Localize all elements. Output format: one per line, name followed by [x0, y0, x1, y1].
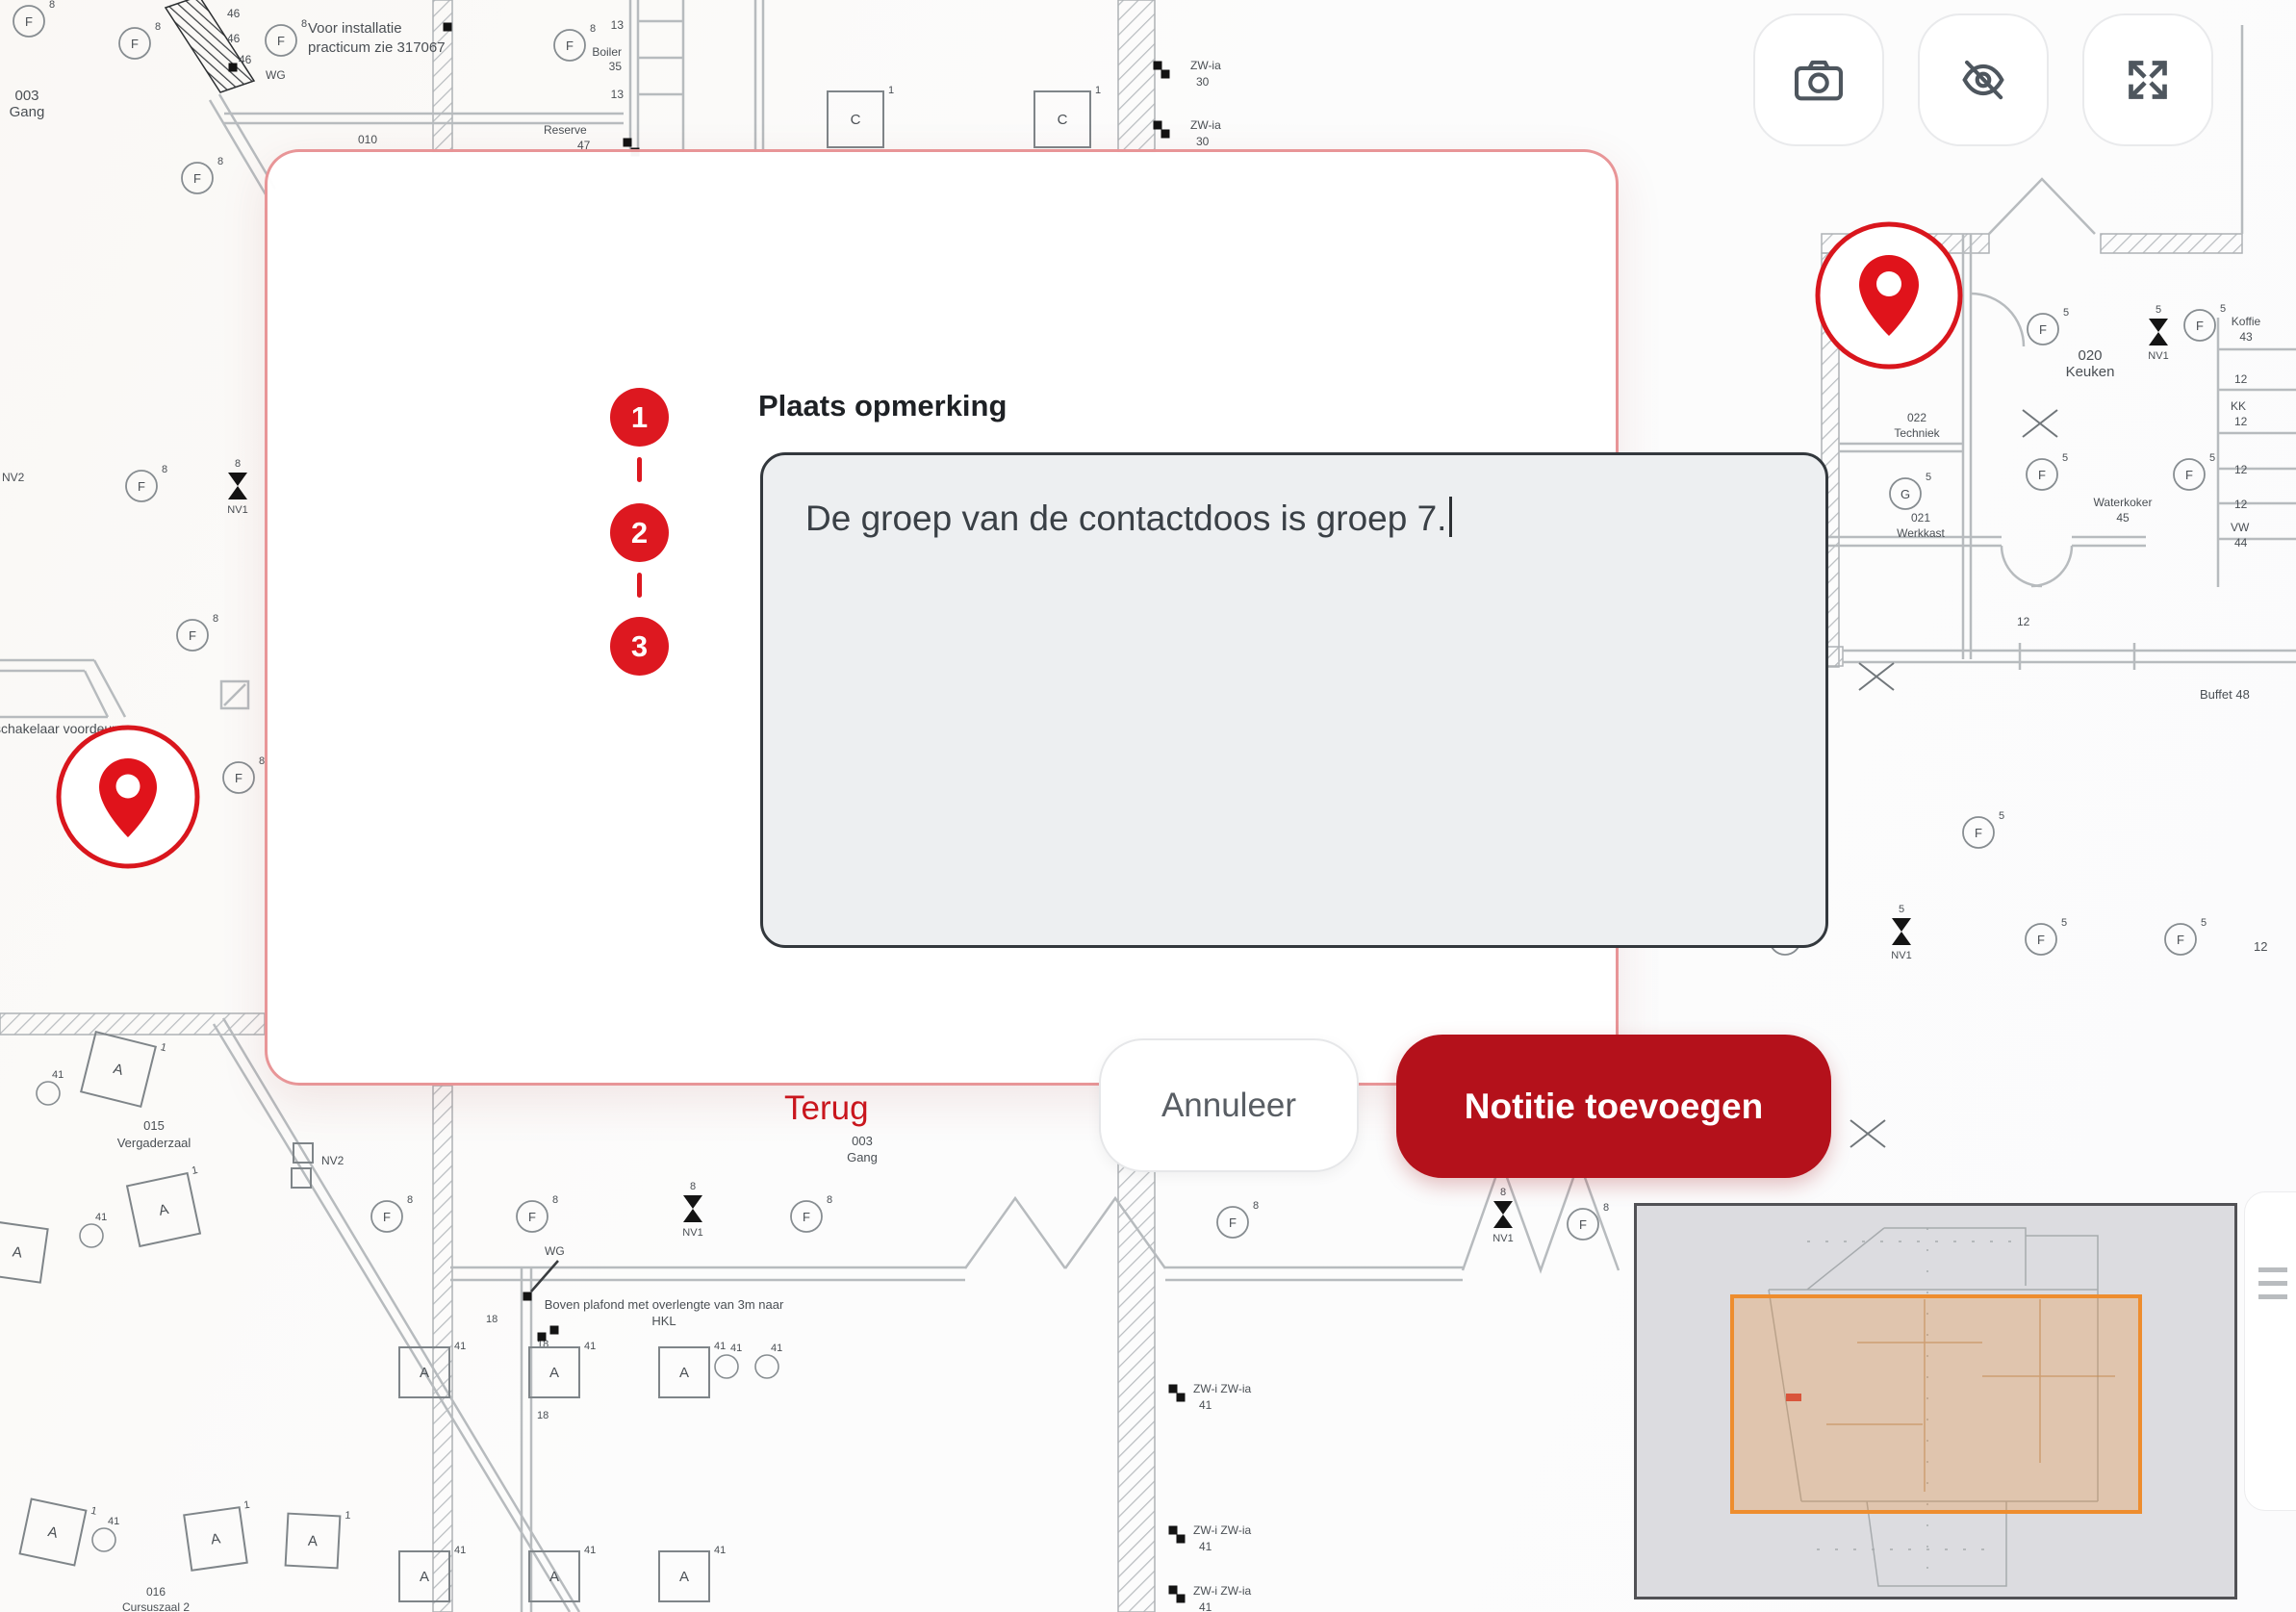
plan-small-circle: 41: [80, 1212, 107, 1247]
plan-square-symbol: A41: [529, 1545, 596, 1601]
svg-text:F: F: [2177, 933, 2184, 947]
plan-square-symbol: A1: [286, 1507, 351, 1569]
eye-off-icon: [1955, 52, 2011, 108]
plan-label: 46: [227, 7, 241, 20]
plan-device-circle: F5: [2174, 452, 2215, 490]
svg-text:F: F: [1229, 1215, 1237, 1230]
svg-text:A: A: [420, 1365, 429, 1381]
note-text: De groep van de contactdoos is groep 7.: [805, 499, 1446, 538]
plan-device-circle: F5: [2027, 452, 2068, 490]
plan-label: 022: [1907, 411, 1926, 424]
svg-text:41: 41: [108, 1516, 119, 1527]
panel-line: [2258, 1267, 2287, 1272]
svg-text:8: 8: [162, 464, 167, 475]
svg-text:8: 8: [155, 21, 161, 33]
add-note-button[interactable]: Notitie toevoegen: [1396, 1035, 1831, 1178]
minimap[interactable]: [1634, 1203, 2237, 1599]
plan-socket-dot: [444, 23, 452, 32]
plan-socket-dot: [523, 1292, 532, 1301]
plan-device-circle: F8: [371, 1194, 413, 1232]
plan-label: 43: [2239, 330, 2253, 344]
svg-text:A: A: [12, 1243, 23, 1261]
svg-text:1: 1: [243, 1499, 251, 1512]
svg-text:5: 5: [1999, 810, 2004, 822]
plan-label: 12: [2234, 463, 2248, 476]
plan-label: 016: [146, 1585, 166, 1599]
plan-label: 41: [1199, 1398, 1212, 1412]
plan-label: ZW-i ZW-ia: [1193, 1523, 1252, 1537]
svg-text:F: F: [1975, 826, 1982, 840]
plan-cross-symbol: [1859, 663, 1894, 690]
plan-label: Boven plafond met overlengte van 3m naar: [545, 1297, 784, 1312]
location-pin-marker[interactable]: [53, 722, 203, 872]
svg-text:NV1: NV1: [1891, 950, 1911, 961]
plan-device-circle: F5: [1963, 810, 2004, 848]
plan-label: 41: [1199, 1540, 1212, 1553]
plan-square-symbol: A1: [81, 1025, 167, 1109]
svg-text:1: 1: [89, 1505, 97, 1518]
plan-cross-symbol: [2023, 410, 2057, 437]
svg-text:41: 41: [714, 1545, 726, 1556]
note-textarea[interactable]: De groep van de contactdoos is groep 7.: [760, 452, 1828, 948]
svg-text:1: 1: [159, 1041, 167, 1054]
plan-square-symbol: A1: [126, 1164, 211, 1246]
svg-text:F: F: [235, 771, 242, 785]
dialog-title: Plaats opmerking: [758, 389, 1007, 423]
plan-device-circle: F5: [2165, 917, 2207, 955]
plan-label: 35: [609, 60, 623, 73]
camera-button[interactable]: [1753, 13, 1884, 146]
plan-socket-dot: [1154, 121, 1162, 130]
plan-device-circle: F5: [2026, 917, 2067, 955]
plan-label: 45: [2116, 511, 2130, 525]
svg-text:F: F: [528, 1210, 536, 1224]
plan-label: Gang: [10, 104, 45, 120]
plan-label: Koffie: [2232, 315, 2261, 328]
plan-device-circle: F8: [554, 23, 596, 61]
plan-nv-symbol: 5NV1: [1891, 904, 1911, 961]
svg-text:A: A: [420, 1569, 429, 1585]
plan-label: 46: [239, 53, 252, 66]
svg-text:8: 8: [235, 458, 241, 470]
plan-device-circle: F8: [791, 1194, 832, 1232]
svg-text:5: 5: [2062, 452, 2068, 464]
svg-text:F: F: [25, 14, 33, 29]
svg-text:A: A: [679, 1365, 689, 1381]
step-indicator-3: 3: [610, 617, 669, 676]
svg-text:F: F: [138, 479, 145, 494]
svg-text:F: F: [383, 1210, 391, 1224]
plan-socket-dot: [624, 139, 632, 147]
svg-text:5: 5: [2061, 917, 2067, 929]
svg-text:8: 8: [301, 18, 307, 30]
plan-label: 13: [611, 88, 625, 101]
step-connector: [637, 573, 642, 598]
svg-text:F: F: [566, 38, 574, 53]
plan-label: WG: [266, 68, 286, 82]
plan-label: 30: [1196, 135, 1210, 148]
svg-text:5: 5: [2201, 917, 2207, 929]
text-cursor: [1449, 497, 1452, 537]
plan-nv-symbol: 8NV1: [682, 1181, 702, 1239]
svg-text:41: 41: [52, 1069, 64, 1081]
svg-text:A: A: [112, 1061, 125, 1079]
plan-device-circle: F8: [517, 1194, 558, 1232]
svg-text:1: 1: [1095, 85, 1101, 96]
svg-text:8: 8: [1603, 1202, 1609, 1214]
svg-text:8: 8: [49, 0, 55, 11]
plan-socket-dot: [1177, 1394, 1186, 1402]
plan-label: KK: [2231, 399, 2246, 413]
svg-text:F: F: [2037, 933, 2045, 947]
plan-label: ZW-i ZW-ia: [1193, 1584, 1252, 1598]
plan-label: Keuken: [2066, 364, 2115, 380]
plan-label: practicum zie 317067: [308, 39, 446, 56]
plan-label: Buffet 48: [2200, 687, 2250, 702]
svg-text:8: 8: [217, 156, 223, 167]
plan-label: 003: [852, 1134, 873, 1148]
plan-square-symbol: A1: [183, 1499, 257, 1571]
fullscreen-button[interactable]: [2082, 13, 2213, 146]
svg-text:5: 5: [1899, 904, 1904, 915]
plan-label: NV2: [2, 471, 25, 484]
plan-device-circle: G5: [1890, 472, 1931, 509]
plan-label: Werkkast: [1897, 526, 1945, 540]
back-button[interactable]: Terug: [784, 1089, 869, 1128]
svg-text:5: 5: [2156, 304, 2161, 316]
plan-device-circle: F8: [126, 464, 167, 501]
plan-small-circle: 41: [92, 1516, 119, 1551]
plan-nv-symbol: 5NV1: [2148, 304, 2168, 362]
svg-text:A: A: [549, 1569, 559, 1585]
svg-text:5: 5: [2220, 303, 2226, 315]
plan-device-circle: F8: [119, 21, 161, 59]
plan-socket-dot: [1161, 70, 1170, 79]
plan-label: ZW-i ZW-ia: [1193, 1382, 1252, 1395]
plan-small-circle: 41: [755, 1343, 782, 1378]
svg-text:F: F: [193, 171, 201, 186]
step-indicator-1: 1: [610, 388, 669, 447]
plan-device-circle: F8: [182, 156, 223, 193]
plan-label: 13: [611, 18, 625, 32]
note-dialog: 1 2 3 Plaats opmerking De groep van de c…: [265, 149, 1619, 1086]
svg-text:A: A: [308, 1533, 319, 1550]
svg-text:5: 5: [2063, 307, 2069, 319]
plan-nv-symbol: 8NV1: [227, 458, 247, 516]
plan-label: 12: [2254, 939, 2267, 954]
plan-socket-dot: [1177, 1595, 1186, 1603]
plan-square-symbol: A: [0, 1221, 48, 1282]
svg-text:41: 41: [714, 1341, 726, 1352]
plan-label: 30: [1196, 75, 1210, 89]
plan-square-symbol: C1: [1034, 85, 1101, 147]
svg-text:NV1: NV1: [227, 504, 247, 516]
svg-text:8: 8: [552, 1194, 558, 1206]
plan-socket-dot: [538, 1333, 547, 1342]
plan-label: 44: [2234, 536, 2248, 550]
plan-socket-dot: [1169, 1526, 1178, 1535]
plan-device-circle: F5: [2184, 303, 2226, 341]
svg-text:A: A: [549, 1365, 559, 1381]
plan-device-circle: F5: [2028, 307, 2069, 345]
plan-socket-dot: [1161, 130, 1170, 139]
plan-device-circle: F8: [223, 755, 265, 793]
plan-socket-dot: [1169, 1385, 1178, 1394]
fullscreen-icon: [2121, 53, 2175, 107]
plan-label: 12: [2017, 615, 2030, 628]
svg-text:F: F: [131, 37, 139, 51]
svg-text:F: F: [277, 34, 285, 48]
plan-socket-dot: [1169, 1586, 1178, 1595]
plan-device-circle: F8: [13, 0, 55, 37]
plan-device-circle: F8: [266, 18, 307, 56]
minimap-viewport[interactable]: [1732, 1296, 2140, 1512]
plan-label: Reserve: [544, 123, 587, 137]
plan-label: 010: [358, 133, 377, 146]
svg-text:F: F: [2185, 468, 2193, 482]
svg-text:F: F: [2038, 468, 2046, 482]
svg-text:F: F: [1579, 1217, 1587, 1232]
plan-label: VW: [2231, 521, 2250, 534]
plan-label: 021: [1911, 511, 1930, 525]
svg-text:A: A: [210, 1530, 221, 1548]
step-indicator-2: 2: [610, 503, 669, 562]
plan-socket-dot: [1154, 62, 1162, 70]
svg-text:F: F: [189, 628, 196, 643]
plan-label: Techniek: [1894, 426, 1940, 440]
plan-label: 41: [1199, 1600, 1212, 1612]
plan-label: 020: [2078, 347, 2102, 364]
plan-label: 18: [537, 1410, 548, 1421]
plan-square-symbol: C1: [828, 85, 894, 147]
svg-text:41: 41: [771, 1343, 782, 1354]
svg-text:1: 1: [191, 1164, 198, 1177]
plan-label: 12: [2234, 415, 2248, 428]
plan-label: NV2: [321, 1154, 344, 1167]
plan-label: 18: [486, 1314, 497, 1325]
svg-text:G: G: [1901, 487, 1910, 501]
svg-text:8: 8: [690, 1181, 696, 1192]
svg-text:NV1: NV1: [682, 1227, 702, 1239]
plan-label: ZW-ia: [1190, 59, 1221, 72]
svg-text:8: 8: [407, 1194, 413, 1206]
svg-text:F: F: [2196, 319, 2204, 333]
plan-nv-symbol: 8NV1: [1492, 1187, 1513, 1244]
plan-cross-symbol: [1850, 1120, 1885, 1147]
plan-device-circle: F8: [177, 613, 218, 651]
plan-label: Cursuszaal 2: [122, 1600, 190, 1612]
plan-label: 12: [2234, 498, 2248, 511]
svg-text:41: 41: [95, 1212, 107, 1223]
svg-text:8: 8: [1500, 1187, 1506, 1198]
svg-text:41: 41: [454, 1341, 466, 1352]
svg-text:41: 41: [454, 1545, 466, 1556]
camera-icon: [1791, 52, 1847, 108]
plan-label: 12: [2234, 372, 2248, 386]
svg-text:NV1: NV1: [1492, 1233, 1513, 1244]
svg-text:A: A: [46, 1523, 59, 1542]
step-connector: [637, 457, 642, 482]
svg-text:8: 8: [590, 23, 596, 35]
plan-label: WG: [545, 1244, 565, 1258]
svg-text:A: A: [679, 1569, 689, 1585]
plan-label: Boiler: [592, 45, 622, 59]
plan-label: 015: [143, 1118, 165, 1133]
plan-square-symbol: A41: [659, 1545, 726, 1601]
plan-label: 46: [227, 32, 241, 45]
svg-text:C: C: [1058, 112, 1068, 128]
svg-text:NV1: NV1: [2148, 350, 2168, 362]
app-canvas: Voor installatiepracticum zie 317067003G…: [0, 0, 2296, 1612]
hide-annotations-button[interactable]: [1918, 13, 2049, 146]
svg-text:1: 1: [344, 1510, 351, 1522]
plan-device-circle: F8: [1217, 1200, 1259, 1238]
plan-label: Gang: [847, 1150, 878, 1164]
svg-text:5: 5: [2209, 452, 2215, 464]
plan-label: 003: [14, 88, 38, 104]
plan-socket-dot: [229, 64, 238, 72]
svg-text:F: F: [803, 1210, 810, 1224]
svg-text:8: 8: [1253, 1200, 1259, 1212]
panel-line: [2258, 1281, 2287, 1286]
side-panel-edge: [2244, 1191, 2296, 1511]
svg-text:1: 1: [888, 85, 894, 96]
plan-label: Waterkoker: [2094, 496, 2153, 509]
svg-text:41: 41: [584, 1545, 596, 1556]
plan-square-symbol: A1: [20, 1493, 98, 1568]
location-pin-marker[interactable]: [1814, 220, 1964, 371]
svg-text:8: 8: [827, 1194, 832, 1206]
plan-socket-dot: [550, 1326, 559, 1335]
svg-text:41: 41: [584, 1341, 596, 1352]
plan-label: HKL: [651, 1314, 676, 1328]
plan-label: Voor installatie: [308, 20, 402, 37]
svg-text:C: C: [851, 112, 861, 128]
plan-device-circle: F8: [1568, 1202, 1609, 1240]
panel-line: [2258, 1294, 2287, 1299]
svg-text:A: A: [157, 1201, 169, 1219]
plan-socket-dot: [1177, 1535, 1186, 1544]
svg-text:5: 5: [1926, 472, 1931, 483]
plan-label: ZW-ia: [1190, 118, 1221, 132]
svg-text:8: 8: [213, 613, 218, 625]
svg-text:F: F: [2039, 322, 2047, 337]
plan-label: Vergaderzaal: [117, 1136, 191, 1150]
plan-small-circle: 41: [37, 1069, 64, 1105]
svg-text:41: 41: [730, 1343, 742, 1354]
cancel-button[interactable]: Annuleer: [1099, 1038, 1359, 1172]
